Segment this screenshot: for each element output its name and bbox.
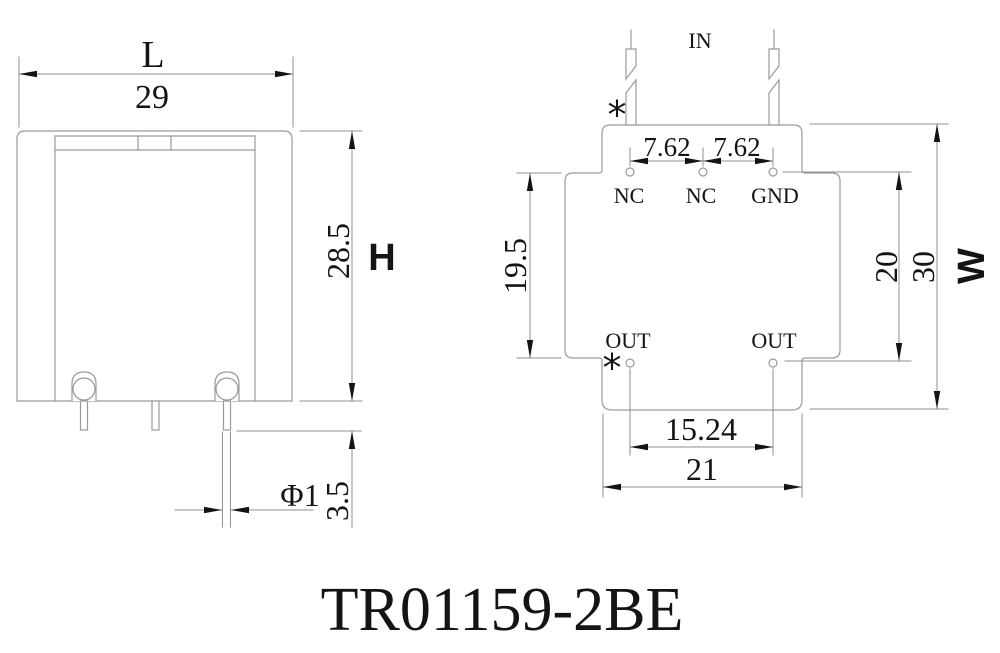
polarity-star-top: * xyxy=(608,93,627,137)
dim-inner-height: 19.5 xyxy=(497,173,561,358)
drawing-page: L 29 28.5 H 3.5 Φ1 xyxy=(0,0,1000,653)
mount-hole-left xyxy=(73,378,95,400)
in-label: IN xyxy=(688,28,711,53)
bottom-view: IN * NC NC GND OUT OUT * 7.62 7.62 xyxy=(497,28,993,497)
dim-pin-diameter: Φ1 xyxy=(175,432,320,527)
front-pin-mid xyxy=(152,401,159,430)
dim-out-pitch: 15.24 xyxy=(630,369,773,455)
dim-width-value: 29 xyxy=(135,79,169,116)
front-body-outline xyxy=(17,131,292,401)
engineering-drawing: L 29 28.5 H 3.5 Φ1 xyxy=(0,0,1000,653)
dim-base-width-value: 21 xyxy=(686,451,718,487)
dim-width-letter: L xyxy=(141,34,164,76)
pin-hole-nc-left xyxy=(626,168,634,176)
front-pin-right xyxy=(224,401,231,430)
dim-inner-height-value: 19.5 xyxy=(497,238,533,294)
dim-pin-row-span-value: 20 xyxy=(868,251,904,283)
dim-outline-height-value: 30 xyxy=(905,251,941,283)
dim-width-axis-letter: W xyxy=(951,248,993,284)
pin-label-out-right: OUT xyxy=(751,328,797,353)
pin-hole-gnd xyxy=(769,168,777,176)
dim-pin-pitch: 7.62 7.62 xyxy=(630,132,773,166)
dim-height-value: 28.5 xyxy=(320,223,356,279)
dim-out-pitch-value: 15.24 xyxy=(665,411,737,447)
mount-hole-right xyxy=(216,378,238,400)
front-pin-left xyxy=(81,401,88,430)
dim-pin-length-value: 3.5 xyxy=(319,481,355,521)
in-lead-right xyxy=(769,30,779,125)
front-view: L 29 28.5 H 3.5 Φ1 xyxy=(17,34,396,527)
pin-label-nc-left: NC xyxy=(614,183,645,208)
pin-label-gnd: GND xyxy=(751,183,799,208)
pin-label-nc-mid: NC xyxy=(686,183,717,208)
pin-hole-nc-mid xyxy=(699,168,707,176)
polarity-star-bottom: * xyxy=(603,346,622,390)
drawing-title: TR01159-2BE xyxy=(321,576,684,644)
in-lead-left xyxy=(626,30,636,125)
dim-height-letter: H xyxy=(368,237,395,279)
dim-pin-row-span: 20 xyxy=(783,172,911,361)
dim-front-height: 28.5 H xyxy=(300,131,396,401)
pin-hole-out-left xyxy=(626,359,634,367)
front-core-outline xyxy=(55,136,255,401)
dim-pitch-left-value: 7.62 xyxy=(643,132,690,162)
dim-front-width: L 29 xyxy=(19,34,293,127)
dim-pin-diameter-value: Φ1 xyxy=(280,477,319,513)
dim-pitch-right-value: 7.62 xyxy=(713,132,760,162)
pin-hole-out-right xyxy=(769,359,777,367)
